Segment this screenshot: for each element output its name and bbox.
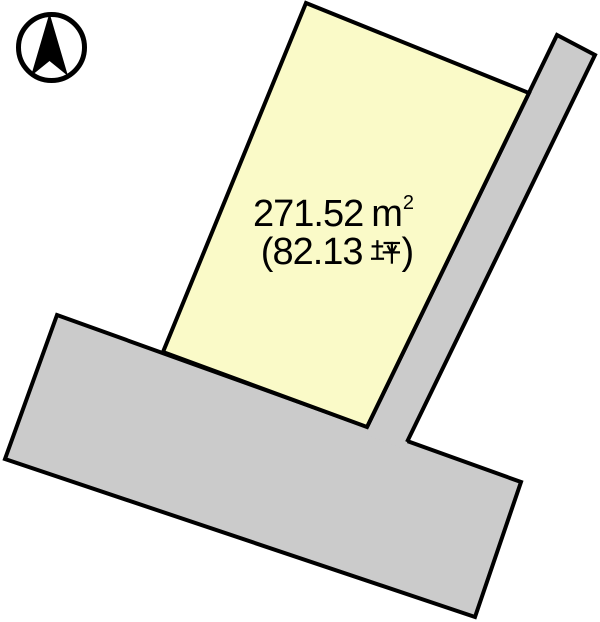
area-label: 271.52m2 (82.13 ) bbox=[218, 195, 448, 271]
area-square-meters: 271.52m2 bbox=[218, 195, 448, 233]
tsubo-open-paren: ( bbox=[261, 231, 273, 273]
area-tsubo: (82.13 ) bbox=[218, 233, 448, 271]
plot-map-canvas bbox=[0, 0, 600, 622]
area-m2-exponent: 2 bbox=[403, 192, 413, 214]
land-plot-diagram: 271.52m2 (82.13 ) bbox=[0, 0, 600, 622]
area-m2-unit: m bbox=[371, 193, 402, 235]
tsubo-value: 82.13 bbox=[272, 231, 362, 273]
north-arrow-icon bbox=[14, 10, 90, 86]
tsubo-kanji-glyph bbox=[371, 237, 400, 266]
area-m2-value: 271.52 bbox=[253, 193, 363, 235]
tsubo-close-paren: ) bbox=[402, 231, 414, 273]
